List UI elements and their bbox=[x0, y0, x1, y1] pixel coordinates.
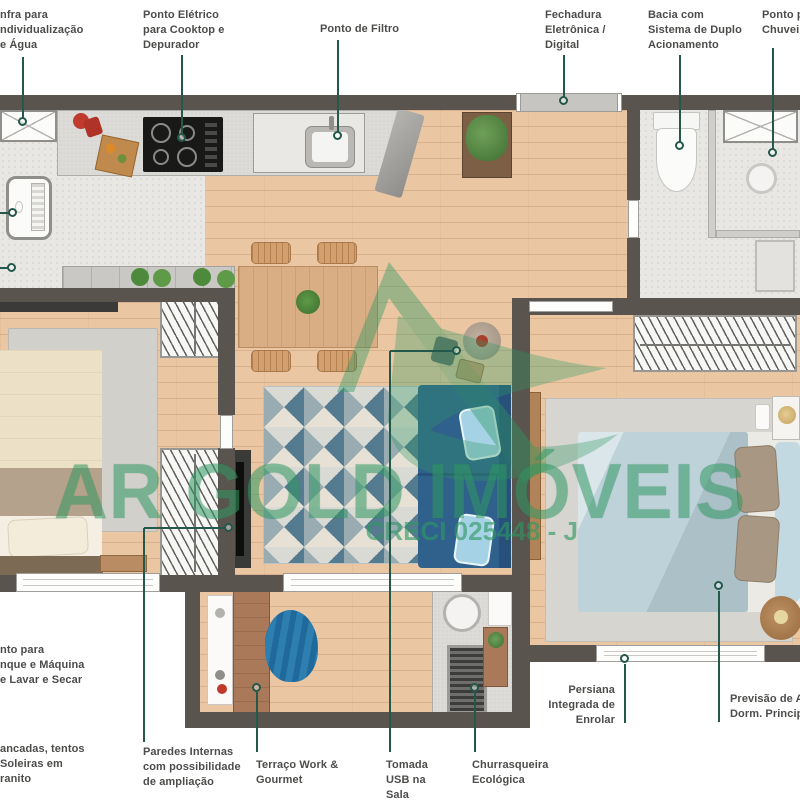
leader-dot bbox=[177, 133, 186, 142]
leader-dot bbox=[452, 346, 461, 355]
callout-bancadas: ancadas, tentos Soleiras em ranito bbox=[0, 742, 85, 787]
callout-ponto-eletrico: Ponto Elétrico para Cooktop e Depurador bbox=[143, 8, 224, 53]
callout-tomada: Tomada USB na Sala bbox=[386, 758, 428, 800]
watermark-creci: CRECI 025448 - J bbox=[0, 516, 578, 547]
leader-line bbox=[563, 55, 565, 98]
leader-line bbox=[181, 55, 183, 135]
leader-line bbox=[337, 40, 339, 133]
leader-line bbox=[390, 350, 453, 352]
leader-dot bbox=[470, 683, 479, 692]
leader-dot bbox=[620, 654, 629, 663]
callout-ar-condicionado: Previsão de Ar- Dorm. Principal bbox=[730, 692, 800, 722]
leader-line bbox=[718, 591, 720, 722]
leader-dot bbox=[768, 148, 777, 157]
callout-tanque: nto para nque e Máquina e Lavar e Secar bbox=[0, 643, 85, 688]
leader-line bbox=[474, 692, 476, 752]
leader-line bbox=[143, 528, 145, 742]
callout-chuveiro: Ponto pa Chuveiro bbox=[762, 8, 800, 38]
leader-dot bbox=[224, 523, 233, 532]
leader-line bbox=[624, 664, 626, 723]
callout-persiana: Persiana Integrada de Enrolar bbox=[530, 683, 615, 728]
leader-line bbox=[256, 692, 258, 752]
leader-line bbox=[679, 55, 681, 143]
leader-line bbox=[22, 57, 24, 119]
leader-dot bbox=[252, 683, 261, 692]
callout-churrasqueira: Churrasqueira Ecológica bbox=[472, 758, 549, 788]
leader-dot bbox=[559, 96, 568, 105]
callout-paredes: Paredes Internas com possibilidade de am… bbox=[143, 745, 241, 790]
leader-line bbox=[144, 527, 225, 529]
leader-dot bbox=[18, 117, 27, 126]
callout-infra-agua: nfra para ndividualização e Água bbox=[0, 8, 83, 53]
leader-dot bbox=[333, 131, 342, 140]
callout-bacia: Bacia com Sistema de Duplo Acionamento bbox=[648, 8, 742, 53]
callout-fechadura: Fechadura Eletrônica / Digital bbox=[545, 8, 606, 53]
callout-ponto-filtro: Ponto de Filtro bbox=[320, 22, 399, 37]
leader-dot bbox=[8, 208, 17, 217]
leader-line bbox=[389, 351, 391, 752]
leader-dot bbox=[714, 581, 723, 590]
floorplan-image: AR GOLD IMÓVEIS CRECI 025448 - J nfra pa… bbox=[0, 0, 800, 800]
leader-line bbox=[772, 48, 774, 150]
callout-terraco: Terraço Work & Gourmet bbox=[256, 758, 338, 788]
leader-dot bbox=[7, 263, 16, 272]
leader-dot bbox=[675, 141, 684, 150]
